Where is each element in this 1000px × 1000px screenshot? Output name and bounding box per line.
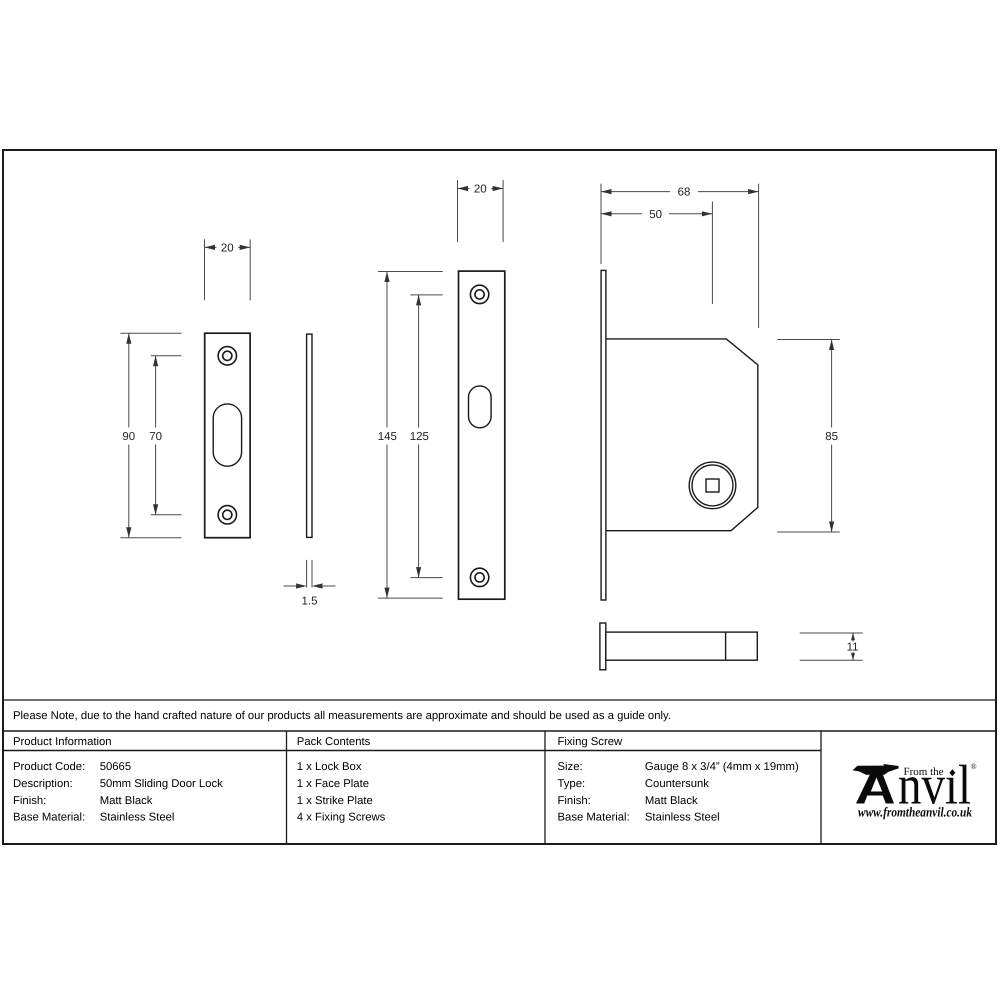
svg-text:Matt Black: Matt Black <box>100 795 153 807</box>
svg-text:85: 85 <box>825 431 838 443</box>
svg-text:1.5: 1.5 <box>302 596 318 608</box>
svg-text:®: ® <box>971 762 977 771</box>
svg-text:1 x Face Plate: 1 x Face Plate <box>297 778 369 790</box>
svg-text:Pack Contents: Pack Contents <box>297 736 371 748</box>
svg-text:90: 90 <box>122 431 135 443</box>
svg-text:Stainless Steel: Stainless Steel <box>645 812 720 824</box>
svg-text:1 x Strike Plate: 1 x Strike Plate <box>297 795 373 807</box>
svg-text:Finish:: Finish: <box>558 795 591 807</box>
svg-text:50: 50 <box>649 209 662 221</box>
svg-text:20: 20 <box>474 184 487 196</box>
svg-text:145: 145 <box>378 431 397 443</box>
svg-text:Countersunk: Countersunk <box>645 778 709 790</box>
svg-text:Product Code:: Product Code: <box>13 761 85 773</box>
svg-text:20: 20 <box>221 242 234 254</box>
svg-text:Base Material:: Base Material: <box>558 812 630 824</box>
svg-text:Description:: Description: <box>13 778 73 790</box>
svg-text:Please Note, due to the hand c: Please Note, due to the hand crafted nat… <box>13 710 671 722</box>
svg-text:Type:: Type: <box>558 778 586 790</box>
svg-text:www.fromtheanvil.co.uk: www.fromtheanvil.co.uk <box>858 805 972 820</box>
svg-text:50mm Sliding Door Lock: 50mm Sliding Door Lock <box>100 778 223 790</box>
svg-text:1 x Lock Box: 1 x Lock Box <box>297 761 362 773</box>
svg-text:4 x Fixing Screws: 4 x Fixing Screws <box>297 812 386 824</box>
svg-text:Size:: Size: <box>558 761 583 773</box>
svg-text:11: 11 <box>847 641 859 653</box>
svg-text:70: 70 <box>149 431 162 443</box>
svg-text:Base Material:: Base Material: <box>13 812 85 824</box>
svg-text:50665: 50665 <box>100 761 131 773</box>
svg-text:68: 68 <box>678 187 691 199</box>
svg-text:Matt Black: Matt Black <box>645 795 698 807</box>
svg-text:Gauge 8 x 3/4” (4mm x 19mm): Gauge 8 x 3/4” (4mm x 19mm) <box>645 761 799 773</box>
svg-text:Stainless Steel: Stainless Steel <box>100 812 175 824</box>
svg-text:Finish:: Finish: <box>13 795 46 807</box>
svg-text:Product Information: Product Information <box>13 736 112 748</box>
svg-text:Fixing Screw: Fixing Screw <box>558 736 624 748</box>
svg-text:125: 125 <box>410 431 429 443</box>
